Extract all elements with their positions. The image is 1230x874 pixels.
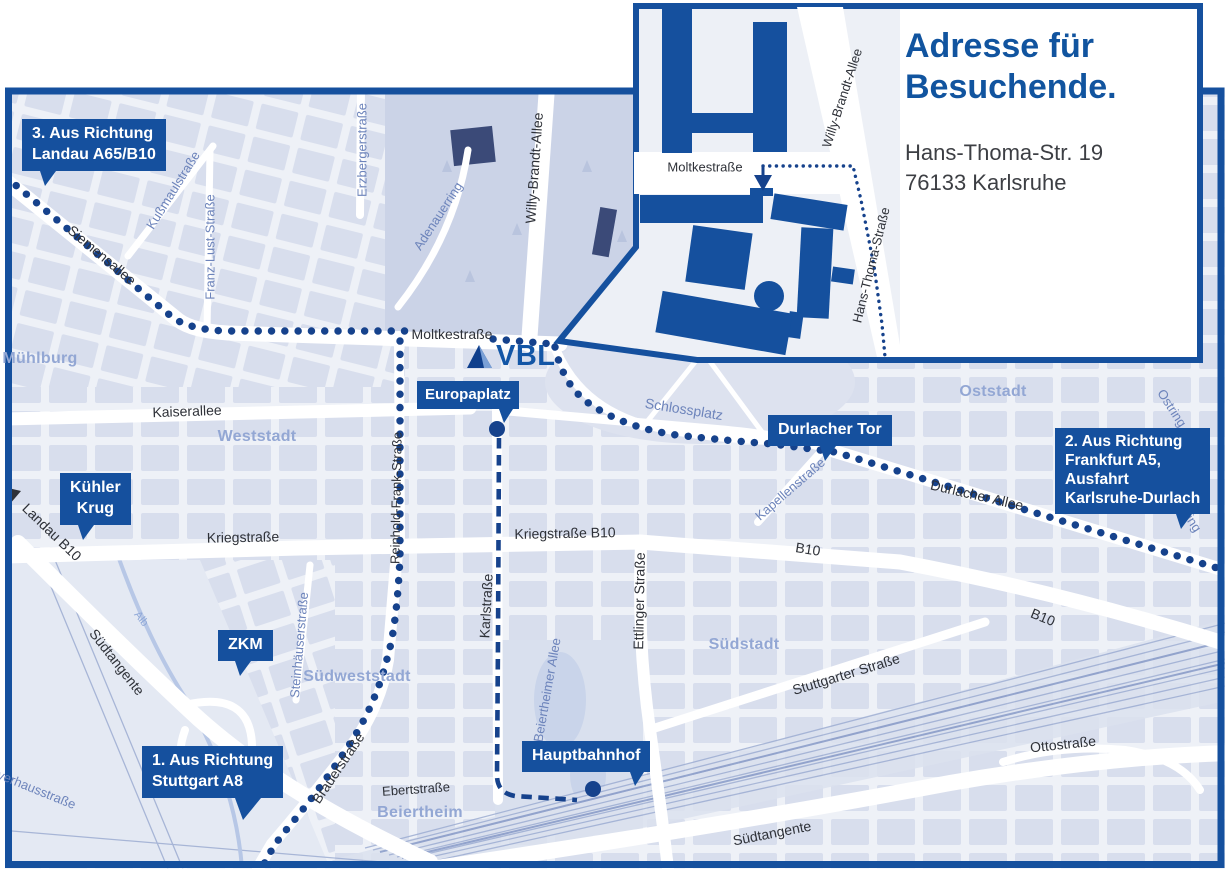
karlsruhe-directions-map: SiemensalleeKußmaulstraßeFranz-Lust-Stra…	[0, 0, 1230, 874]
inset-callout-svg	[0, 0, 1230, 874]
inset-text-panel	[900, 9, 1197, 357]
